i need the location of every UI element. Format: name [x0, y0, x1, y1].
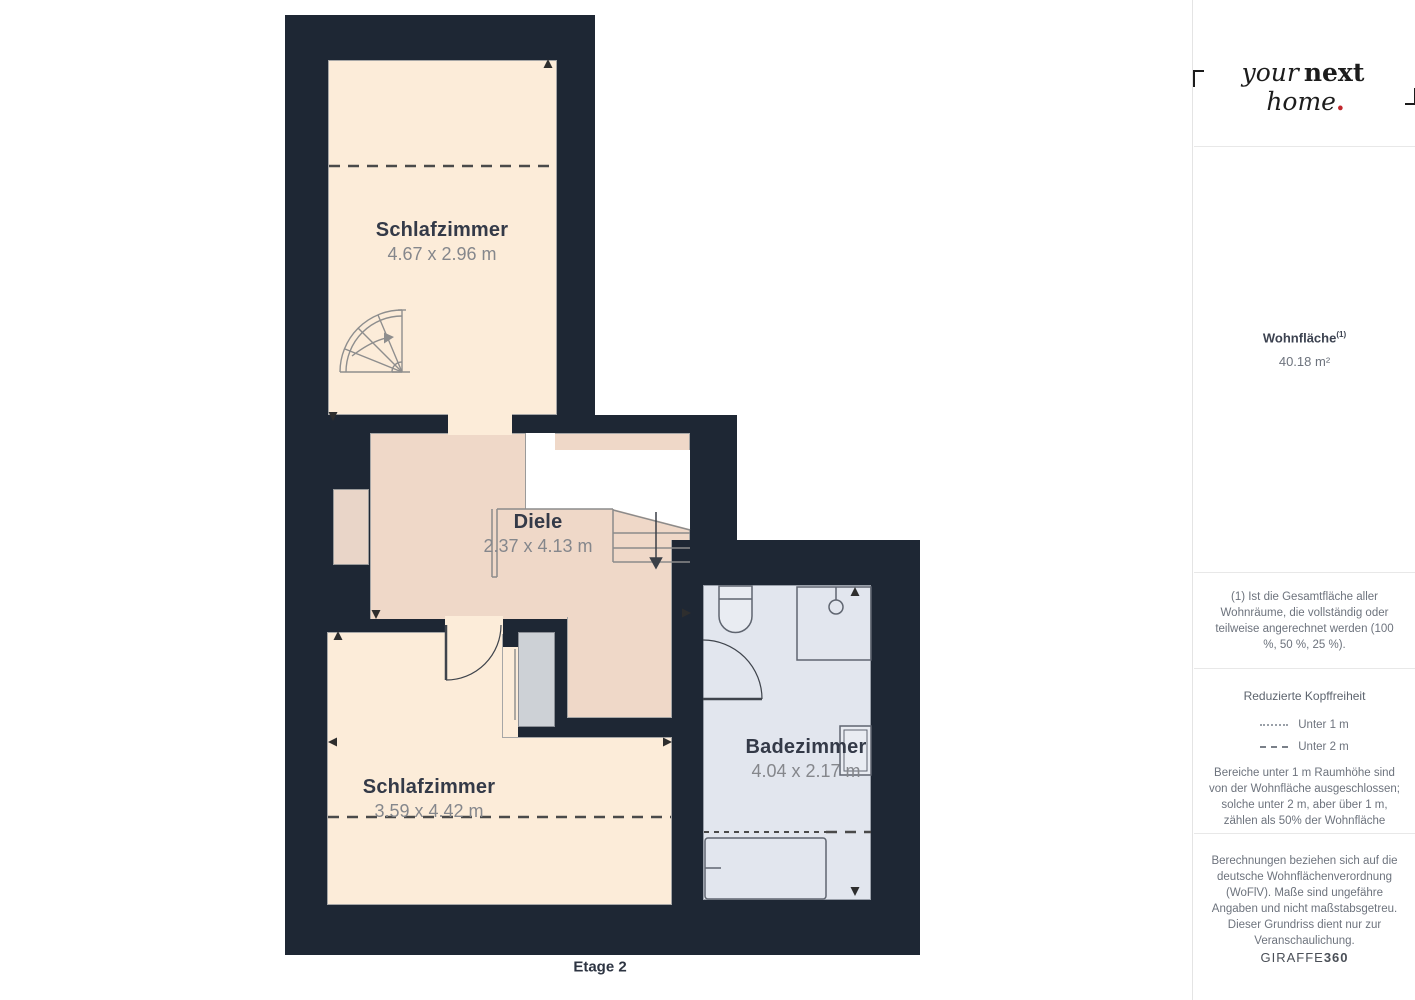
stairwell-void-main — [555, 450, 690, 509]
logo-word-your: your — [1242, 58, 1299, 87]
living-area-card: Wohnfläche(1) 40.18 m² — [1193, 330, 1415, 369]
legend-under-1m: Unter 1 m — [1193, 719, 1415, 731]
room-name: Badezimmer — [746, 736, 867, 759]
room-label-schlafzimmer-1: Schlafzimmer 4.67 x 2.96 m — [376, 219, 508, 265]
room-label-badezimmer: Badezimmer 4.04 x 2.17 m — [746, 736, 867, 782]
disclaimer-card: Berechnungen beziehen sich auf die deuts… — [1193, 853, 1415, 949]
info-sidebar: your next home. Wohnfläche(1) 40.18 m² (… — [1192, 0, 1415, 1000]
dashed-line-icon — [1260, 746, 1288, 748]
logo-word-home: home — [1266, 87, 1336, 116]
room-dimensions: 3.59 x 4.42 m — [363, 801, 495, 822]
room-name: Schlafzimmer — [376, 219, 508, 242]
sidebar-divider — [1194, 146, 1415, 147]
logo-corner-bottom-right-icon — [1405, 88, 1415, 105]
legend-label: Unter 1 m — [1298, 719, 1349, 731]
logo-card: your next home. — [1193, 58, 1415, 116]
floor-plan: Schlafzimmer 4.67 x 2.96 m Diele 2.37 x … — [0, 0, 1192, 1000]
room-label-schlafzimmer-2: Schlafzimmer 3.59 x 4.42 m — [363, 776, 495, 822]
doorway-shaft-access — [503, 647, 518, 737]
sidebar-divider — [1194, 833, 1415, 834]
brand-name: GIRAFFE — [1260, 950, 1323, 965]
giraffe360-brand: GIRAFFE360 — [1193, 950, 1415, 965]
logo-dot: . — [1336, 87, 1345, 116]
brand-suffix: 360 — [1324, 950, 1349, 965]
doorway-diele-schlafzimmer2 — [445, 616, 503, 634]
room-name: Schlafzimmer — [363, 776, 495, 799]
wall-block-stairwell-right — [690, 415, 737, 540]
room-dimensions: 4.04 x 2.17 m — [746, 761, 867, 782]
room-label-diele: Diele 2.37 x 4.13 m — [483, 511, 592, 557]
sidebar-divider — [1194, 572, 1415, 573]
doorway-schlafzimmer1-diele — [448, 413, 512, 435]
footnote-marker: (1) — [1336, 330, 1346, 339]
brand-logo: your next home. — [1193, 58, 1415, 116]
legend-under-2m: Unter 2 m — [1193, 741, 1415, 753]
dotted-line-icon — [1260, 724, 1288, 726]
headroom-note: Bereiche unter 1 m Raumhöhe sind von der… — [1193, 765, 1415, 829]
logo-word-next: next — [1304, 58, 1365, 87]
room-dimensions: 2.37 x 4.13 m — [483, 536, 592, 557]
room-floor-diele-arm — [567, 617, 672, 718]
footnote-card: (1) Ist die Gesamtfläche aller Wohnräume… — [1193, 589, 1415, 653]
logo-corner-top-left-icon — [1193, 70, 1204, 87]
headroom-title: Reduzierte Kopffreiheit — [1193, 689, 1415, 703]
living-area-value: 40.18 m² — [1193, 354, 1415, 369]
sidebar-divider — [1194, 668, 1415, 669]
room-floor-schlafzimmer-2-right — [502, 737, 672, 905]
level-label: Etage 2 — [573, 959, 626, 976]
room-name: Diele — [483, 511, 592, 534]
legend-label: Unter 2 m — [1298, 741, 1349, 753]
wall-niche — [333, 489, 369, 565]
shaft — [518, 632, 555, 727]
screenshot-canvas: Schlafzimmer 4.67 x 2.96 m Diele 2.37 x … — [0, 0, 1415, 1000]
stairwell-void-left — [525, 433, 555, 509]
headroom-card: Reduzierte Kopffreiheit Unter 1 m Unter … — [1193, 689, 1415, 829]
room-dimensions: 4.67 x 2.96 m — [376, 244, 508, 265]
living-area-label: Wohnfläche(1) — [1193, 330, 1415, 345]
room-floor-schlafzimmer-2-left — [327, 632, 503, 905]
